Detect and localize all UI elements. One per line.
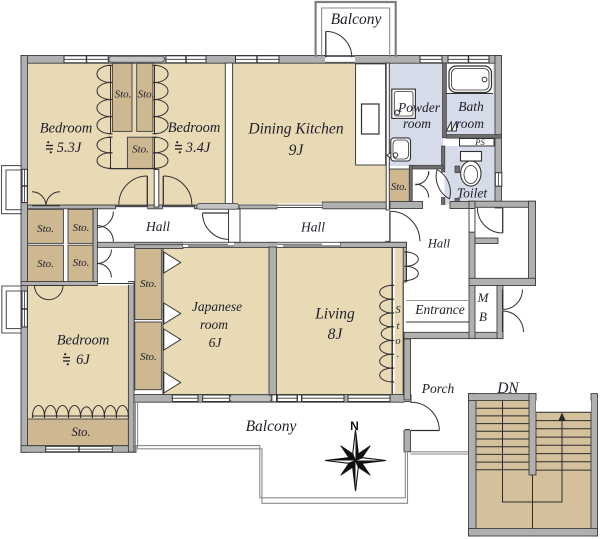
svg-text:Living: Living [314, 306, 355, 323]
svg-text:Balcony: Balcony [246, 418, 297, 435]
svg-text:Bedroom: Bedroom [168, 120, 221, 136]
svg-text:Japanese: Japanese [192, 299, 242, 314]
svg-text:Toilet: Toilet [457, 186, 489, 201]
svg-text:room: room [200, 317, 228, 332]
svg-text:Porch: Porch [421, 381, 455, 396]
svg-text:Balcony: Balcony [331, 11, 382, 28]
svg-text:Sto.: Sto. [73, 257, 90, 269]
svg-text:Sto.: Sto. [37, 223, 54, 235]
svg-text:Bedroom: Bedroom [57, 333, 110, 349]
svg-text:Dining Kitchen: Dining Kitchen [247, 121, 343, 138]
svg-text:Sto.: Sto. [132, 144, 149, 156]
svg-text:8J: 8J [328, 326, 344, 343]
svg-text:room: room [456, 116, 484, 131]
svg-text:Sto.: Sto. [115, 89, 132, 101]
svg-text:Sto.: Sto. [138, 89, 155, 101]
svg-text:9J: 9J [289, 142, 305, 159]
svg-text:Sto.: Sto. [71, 425, 90, 439]
svg-text:.: . [397, 349, 400, 360]
svg-text:Sto.: Sto. [37, 258, 54, 270]
svg-text:Entrance: Entrance [414, 302, 465, 317]
svg-text:Sto.: Sto. [391, 182, 407, 193]
svg-text:3.4J: 3.4J [185, 140, 211, 156]
svg-text:Hall: Hall [145, 219, 170, 234]
svg-text:5.3J: 5.3J [57, 140, 82, 156]
svg-text:M: M [477, 290, 490, 305]
svg-text:Bedroom: Bedroom [40, 121, 93, 137]
svg-text:PS: PS [474, 137, 485, 147]
svg-text:Hall: Hall [427, 237, 451, 251]
svg-text:N: N [350, 419, 359, 433]
svg-text:Hall: Hall [300, 220, 325, 235]
svg-text:6J: 6J [76, 352, 90, 368]
svg-text:Bath: Bath [458, 99, 484, 114]
svg-text:Sto.: Sto. [140, 351, 157, 363]
svg-text:DN: DN [496, 380, 520, 397]
svg-text:o: o [395, 336, 400, 347]
svg-text:B: B [479, 309, 487, 324]
svg-text:room: room [403, 116, 431, 131]
svg-text:6J: 6J [209, 335, 223, 350]
svg-text:S: S [395, 305, 401, 316]
svg-text:Sto.: Sto. [73, 222, 90, 234]
svg-text:Powder: Powder [397, 100, 441, 115]
svg-text:Sto.: Sto. [140, 278, 157, 290]
